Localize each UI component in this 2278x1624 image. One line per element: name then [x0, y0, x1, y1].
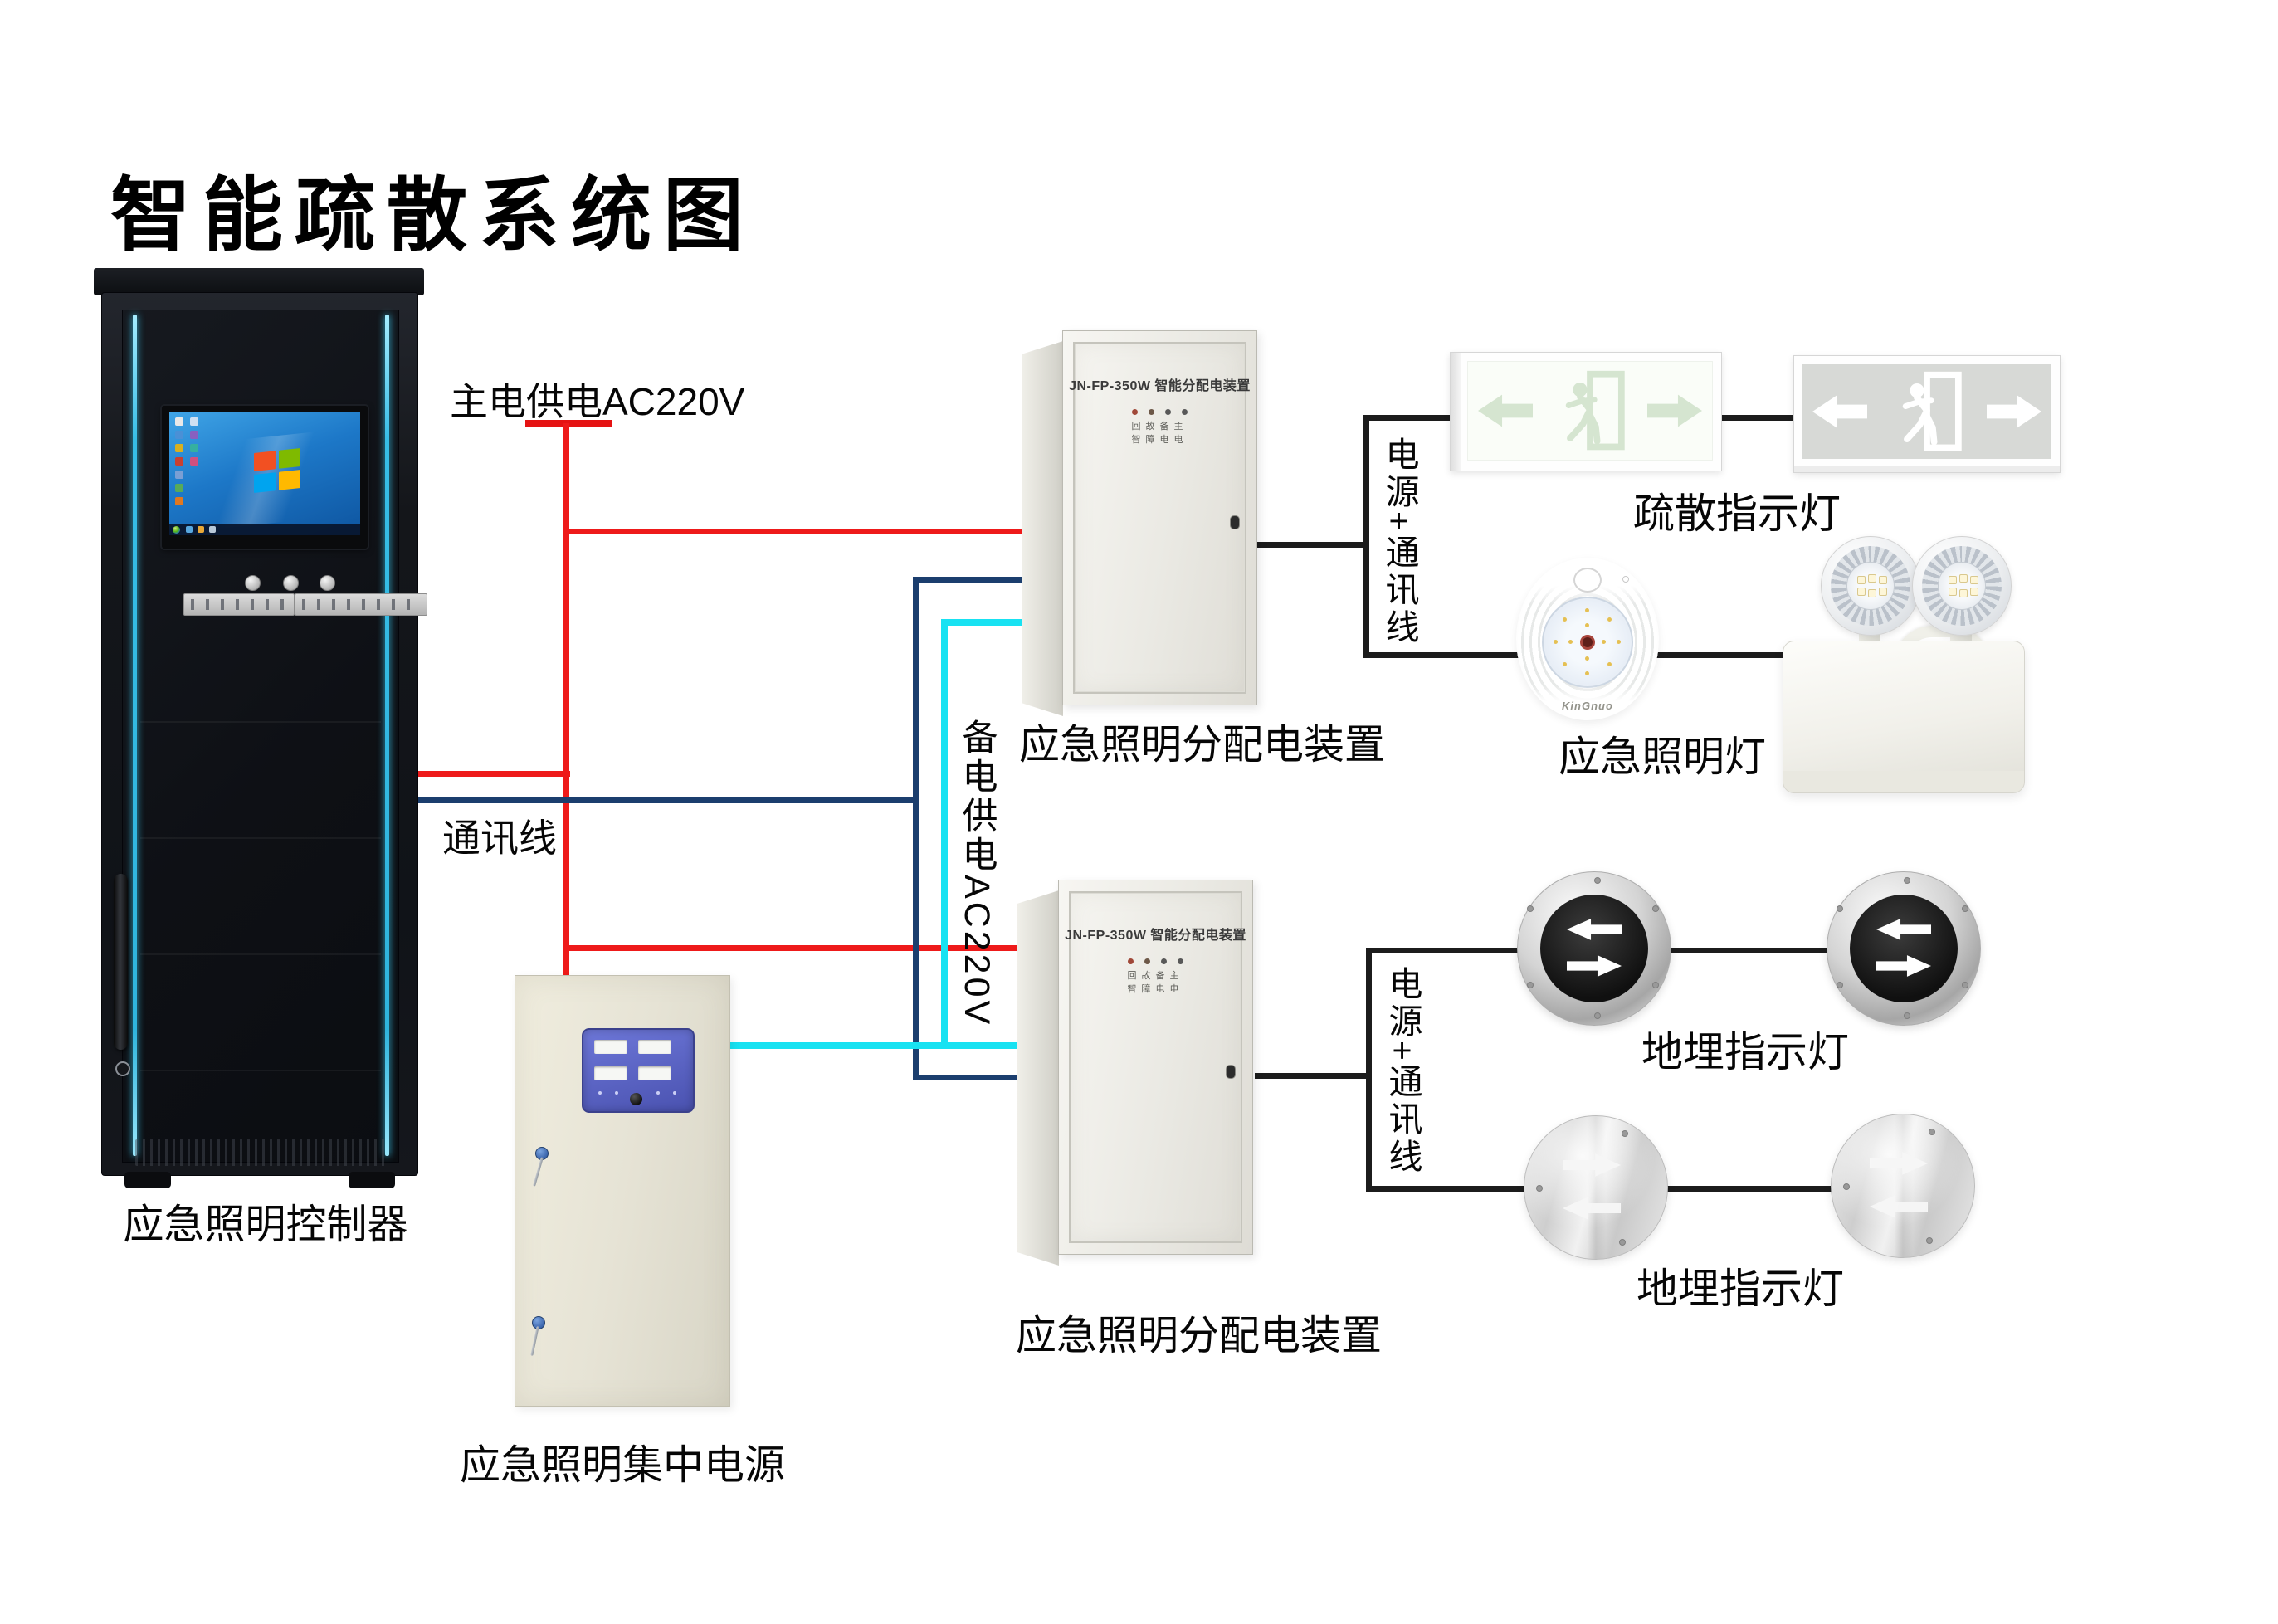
- ground-arrow-right-icon: [1876, 954, 1931, 978]
- wire-comm-from-controller: [412, 797, 919, 803]
- ground-light-black-2: [1827, 871, 1981, 1026]
- desktop-icon: [175, 457, 183, 466]
- taskbar-icon: [186, 526, 193, 533]
- psu-indicator: [673, 1091, 676, 1095]
- rack-knob: [320, 575, 335, 591]
- exit-arrow-left-icon: [1812, 394, 1867, 429]
- rack-shelf-line: [140, 721, 381, 723]
- rack-knob: [283, 575, 299, 591]
- desktop-icon: [190, 417, 198, 426]
- controller-rack: [101, 292, 418, 1176]
- distribution-box-leds: [1063, 409, 1256, 415]
- wire-junction2-to-glight1: [1370, 948, 1520, 953]
- dome-indicator-dot: [1622, 576, 1629, 583]
- desktop-icon: [190, 444, 198, 452]
- junction2-label: 电源+通讯线: [1378, 966, 1427, 1190]
- distribution-box-2: JN-FP-350W 智能分配电装置 回故备主 智障电电: [1017, 880, 1251, 1266]
- dome-test-button: [1573, 568, 1602, 593]
- psu-knob: [630, 1093, 642, 1105]
- ground-light-face: [1850, 895, 1958, 1002]
- distribution-box-door: [1069, 891, 1242, 1243]
- psu-control-panel: [582, 1028, 695, 1113]
- dome-brand-text: KinGnuo: [1516, 700, 1659, 712]
- rack-shelf-line: [140, 837, 381, 839]
- twin-head-core: [1938, 562, 1986, 610]
- wire-glight3-to-glight4: [1665, 1186, 1833, 1192]
- rack-foot: [349, 1172, 395, 1188]
- rack-knob: [245, 575, 261, 591]
- psu-indicator: [615, 1091, 618, 1095]
- desktop-icon: [175, 471, 183, 479]
- diagram-title: 智能疏散系统图: [110, 149, 755, 266]
- rack-accent-strip-left: [133, 315, 137, 1156]
- rack-button-panel-right: [295, 593, 427, 616]
- distribution1-label: 应急照明分配电装置: [1019, 712, 1385, 771]
- desktop-icon: [175, 444, 183, 452]
- distribution-box-led-text2: 智障电电: [1059, 983, 1252, 995]
- comm-line-label: 通讯线: [442, 808, 557, 863]
- ground-light-row2-label: 地埋指示灯: [1637, 1256, 1844, 1315]
- psu-key-lower-shaft: [530, 1326, 539, 1356]
- distribution-box-front: JN-FP-350W 智能分配电装置 回故备主 智障电电: [1062, 330, 1257, 705]
- ground-arrow-right-icon: [1567, 954, 1622, 978]
- psu-display: [594, 1066, 627, 1080]
- ground-arrow-left-icon: [1567, 918, 1622, 941]
- wire-glight1-to-glight2: [1666, 948, 1829, 953]
- exit-sign2-panel: [1802, 364, 2051, 459]
- dome-emergency-lamp: KinGnuo: [1516, 558, 1659, 720]
- psu-key-upper-shaft: [533, 1157, 544, 1186]
- running-man-door-icon: [1554, 368, 1626, 454]
- ground-arrow-left-icon: [1876, 918, 1931, 941]
- ground-light-steel-2: [1831, 1114, 1975, 1258]
- wire-junction2-vertical: [1366, 948, 1372, 1192]
- ground-light-black-1: [1517, 871, 1671, 1026]
- desktop-icon: [175, 484, 183, 492]
- exit-sign-2: [1793, 355, 2061, 473]
- running-man-door-icon: [1891, 369, 1963, 454]
- exit-sign1-panel: [1467, 361, 1713, 461]
- emergency-lamp-label: 应急照明灯: [1559, 724, 1766, 783]
- psu-display: [638, 1066, 671, 1080]
- main-power-label: 主电供电AC220V: [450, 372, 744, 427]
- psu-indicator: [598, 1091, 602, 1095]
- evac-sign-label: 疏散指示灯: [1633, 480, 1841, 540]
- distribution-box-keyhole: [1226, 1065, 1236, 1079]
- wire-main-power-to-distribution1: [568, 529, 1024, 534]
- ground-arrow-right-icon: [1870, 1151, 1928, 1176]
- exit-sign-edge: [1451, 353, 1461, 471]
- rack-button-panel-left: [183, 593, 295, 616]
- ground-arrow-left-icon: [1870, 1194, 1928, 1219]
- rack-shelf-line: [140, 953, 381, 955]
- ground-arrow-left-icon: [1563, 1196, 1621, 1221]
- rack-foot: [124, 1172, 171, 1188]
- rack-vent-grille: [135, 1139, 389, 1166]
- distribution-box-front: JN-FP-350W 智能分配电装置 回故备主 智障电电: [1058, 880, 1253, 1255]
- twin-lamp-base: [1783, 771, 2024, 792]
- rack-keyhole: [115, 1061, 130, 1076]
- distribution-box-1: JN-FP-350W 智能分配电装置 回故备主 智障电电: [1022, 330, 1256, 716]
- desktop-icon: [190, 431, 198, 439]
- wire-sign1-to-sign2: [1720, 415, 1793, 421]
- central-power-label: 应急照明集中电源: [456, 1432, 788, 1491]
- exit-arrow-left-icon: [1478, 393, 1533, 428]
- exit-sign-edge: [1794, 466, 2060, 472]
- distribution-box-door: [1073, 342, 1246, 694]
- wire-junction1-vertical: [1363, 415, 1369, 658]
- distribution-box-led-text1: 回故备主: [1059, 970, 1252, 982]
- windows-taskbar: [169, 524, 360, 535]
- controller-monitor: [162, 406, 368, 549]
- rack-accent-strip-right: [385, 315, 389, 1156]
- dome-led-core: [1580, 635, 1595, 650]
- start-orb: [173, 526, 180, 534]
- dome-led-panel: [1542, 597, 1633, 688]
- junction1-label: 电源+通讯线: [1374, 436, 1424, 661]
- backup-power-label: 备电供电AC220V: [951, 719, 1002, 1067]
- psu-display: [638, 1040, 671, 1054]
- wire-distribution2-output: [1255, 1073, 1372, 1079]
- desktop-icon: [190, 457, 198, 466]
- rack-shelf-line: [140, 1070, 381, 1071]
- psu-indicator: [656, 1091, 660, 1095]
- desktop-icon: [175, 417, 183, 426]
- wire-dome-to-twin: [1656, 652, 1785, 658]
- controller-label: 应急照明控制器: [100, 1192, 432, 1251]
- desktop-icon: [175, 431, 183, 439]
- distribution2-label: 应急照明分配电装置: [1016, 1303, 1382, 1362]
- ground-light-steel-1: [1524, 1115, 1668, 1260]
- ground-arrow-right-icon: [1563, 1153, 1621, 1178]
- ground-light-face: [1540, 895, 1648, 1002]
- distribution-box-model: JN-FP-350W 智能分配电装置: [1059, 924, 1252, 944]
- psu-display: [594, 1040, 627, 1054]
- wire-main-power-vertical: [563, 423, 569, 978]
- exit-sign-1: [1450, 352, 1722, 471]
- windows-desktop-screen: [169, 412, 360, 535]
- central-power-box: [515, 975, 730, 1407]
- distribution-box-model: JN-FP-350W 智能分配电装置: [1063, 374, 1256, 394]
- twin-head-core: [1846, 562, 1895, 610]
- windows-logo: [254, 448, 300, 493]
- wire-comm-to-distribution1: [917, 577, 1023, 583]
- wire-backup-power-vertical: [941, 619, 948, 1049]
- wire-distribution1-output: [1255, 542, 1368, 548]
- wire-backup-power-to-distribution1: [946, 619, 1023, 626]
- distribution-box-led-text1: 回故备主: [1063, 421, 1256, 432]
- taskbar-icon: [198, 526, 204, 533]
- wire-main-power-to-controller: [412, 771, 570, 777]
- wire-comm-vertical: [913, 577, 919, 1080]
- wire-junction1-to-sign: [1368, 415, 1451, 421]
- wire-comm-to-distribution2: [917, 1075, 1019, 1080]
- rack-door-handle: [114, 874, 128, 1050]
- distribution-box-side: [1017, 890, 1059, 1266]
- distribution-box-keyhole: [1230, 515, 1240, 529]
- taskbar-icon: [209, 526, 216, 533]
- desktop-icon: [175, 497, 183, 505]
- twin-lamp-head-left: [1821, 536, 1920, 636]
- twin-lamp-head-right: [1912, 536, 2012, 636]
- exit-arrow-right-icon: [1987, 394, 2041, 429]
- ground-light-row1-label: 地埋指示灯: [1641, 1019, 1849, 1079]
- twin-lamp-body: [1783, 641, 2025, 793]
- distribution-box-leds: [1059, 958, 1252, 964]
- distribution-box-led-text2: 智障电电: [1063, 434, 1256, 446]
- exit-arrow-right-icon: [1647, 393, 1702, 428]
- distribution-box-side: [1022, 341, 1063, 716]
